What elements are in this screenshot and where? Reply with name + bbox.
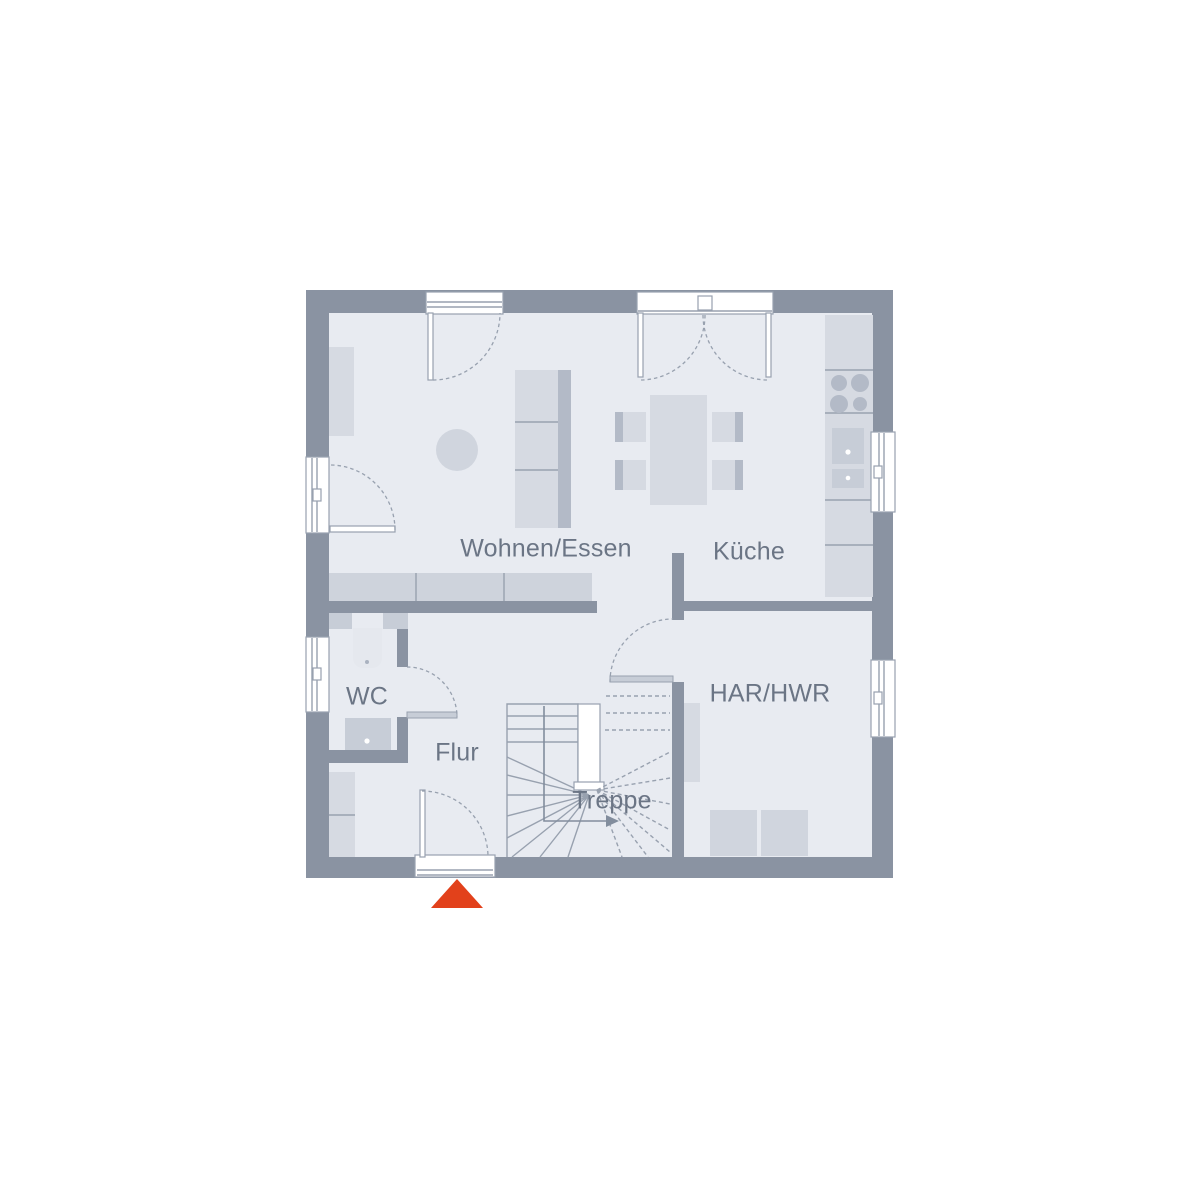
washer (710, 810, 757, 856)
dining-table (650, 395, 707, 505)
shelf-unit-back (558, 370, 571, 528)
dining-chair-back (735, 412, 743, 442)
dining-chair-back (615, 460, 623, 490)
dryer (761, 810, 808, 856)
wc-sink (345, 718, 391, 750)
toilet-bowl (353, 628, 382, 668)
wardrobe (329, 772, 355, 857)
sofa (329, 573, 592, 601)
room-label-wc: WC (346, 683, 388, 712)
dining-chair-back (615, 412, 623, 442)
wall-kitchen-south (684, 601, 872, 611)
coffee-table (436, 429, 478, 471)
kitchen-sink (832, 428, 864, 464)
sideboard (329, 347, 354, 436)
room-label-hall: Flur (435, 739, 479, 768)
kitchen-sink-drainer (832, 469, 864, 488)
room-label-stairs: Treppe (572, 787, 651, 816)
entrance-triangle-icon (431, 879, 483, 908)
shelf-unit (515, 370, 558, 528)
room-label-utility: HAR/HWR (710, 680, 831, 709)
room-label-living-dining: Wohnen/Essen (460, 535, 632, 564)
room-label-kitchen: Küche (713, 538, 785, 567)
wall-kitchen-west (672, 553, 684, 620)
floor-plan-canvas: Wohnen/Essen Küche WC Flur Treppe HAR/HW… (0, 0, 1200, 1200)
dining-chair-back (735, 460, 743, 490)
toilet-notch (352, 613, 383, 629)
wall-living-south (329, 601, 597, 613)
wall-stairs-east (672, 682, 684, 857)
wall-wc-south (329, 750, 408, 763)
utility-cabinet (684, 703, 700, 782)
